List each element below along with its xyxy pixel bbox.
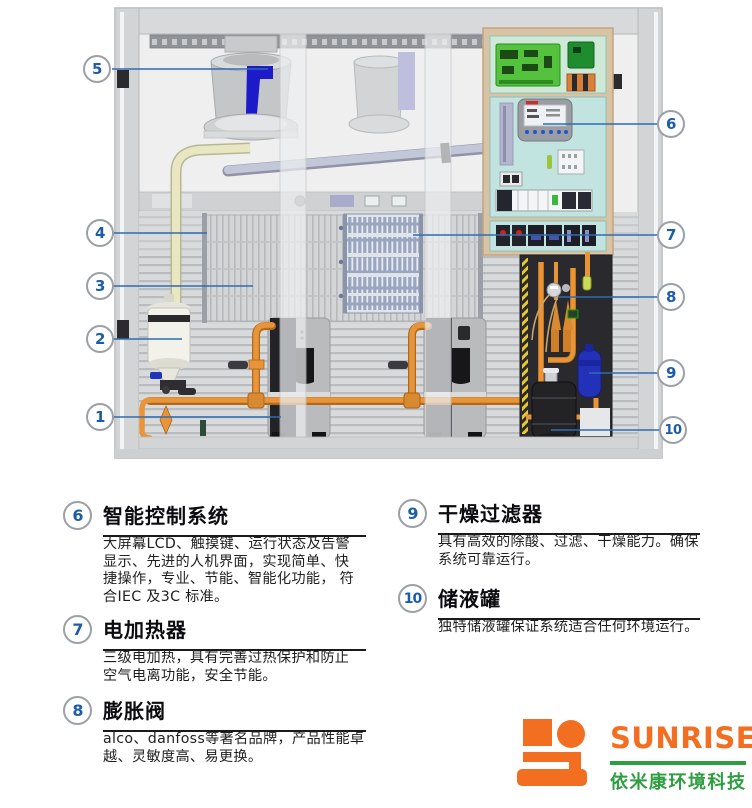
section-smart-control: 6 智能控制系统 大屏幕LCD、触摸键、运行状态及告警 显示、先进的人机界面，实… bbox=[63, 500, 368, 612]
callout-4: 4 bbox=[86, 219, 114, 247]
callout-7: 7 bbox=[657, 221, 685, 249]
fan-right bbox=[349, 52, 415, 133]
electric-heater bbox=[339, 214, 423, 313]
section-title: 干燥过滤器 bbox=[438, 498, 700, 535]
section-number-badge: 10 bbox=[398, 584, 427, 613]
callout-3: 3 bbox=[86, 272, 114, 300]
section-number-badge: 9 bbox=[398, 499, 427, 528]
refrigeration-compartment bbox=[520, 252, 612, 443]
callout-5: 5 bbox=[83, 55, 111, 83]
callout-1: 1 bbox=[86, 403, 114, 431]
section-title: 智能控制系统 bbox=[103, 500, 366, 537]
section-receiver: 10 储液罐 独特储液罐保证系统适合任何环境运行。 bbox=[398, 583, 703, 639]
section-body: 三级电加热，具有完善过热保护和防止 空气电离功能，安全节能。 bbox=[103, 650, 349, 685]
section-body: alco、danfoss等著名品牌，产品性能卓 越、灵敏度高、易更换。 bbox=[103, 731, 364, 766]
section-electric-heater: 7 电加热器 三级电加热，具有完善过热保护和防止 空气电离功能，安全节能。 bbox=[63, 614, 368, 684]
section-drier-filter: 9 干燥过滤器 具有高效的除酸、过滤、干燥能力。确保 系统可靠运行。 bbox=[398, 498, 703, 580]
section-number-badge: 7 bbox=[63, 615, 92, 644]
section-number-badge: 8 bbox=[63, 696, 92, 725]
callout-6: 6 bbox=[657, 110, 685, 138]
section-body: 独特储液罐保证系统适合任何环境运行。 bbox=[438, 619, 699, 637]
section-body: 大屏幕LCD、触摸键、运行状态及告警 显示、先进的人机界面，实现简单、快 捷操作… bbox=[103, 536, 354, 606]
logo-divider bbox=[610, 761, 746, 765]
company-logo: SUNRISE 依米康环境科技 bbox=[515, 716, 747, 798]
logo-brand-text: SUNRISE bbox=[610, 721, 752, 755]
section-title: 储液罐 bbox=[438, 583, 700, 620]
section-body: 具有高效的除酸、过滤、干燥能力。确保 系统可靠运行。 bbox=[438, 534, 699, 569]
catalog-page: 5 4 3 2 1 6 7 8 9 10 6 智能控制系统 大屏幕LCD、触摸键… bbox=[0, 0, 752, 808]
section-title: 膨胀阀 bbox=[103, 695, 366, 732]
callout-9: 9 bbox=[657, 359, 685, 387]
section-number-badge: 6 bbox=[63, 501, 92, 530]
logo-company-text: 依米康环境科技 bbox=[610, 768, 747, 794]
control-panel bbox=[483, 28, 613, 255]
sunrise-logo-icon bbox=[517, 719, 599, 787]
callout-8: 8 bbox=[657, 283, 685, 311]
callout-10: 10 bbox=[659, 416, 687, 444]
callout-2: 2 bbox=[86, 325, 114, 353]
section-title: 电加热器 bbox=[103, 614, 366, 651]
section-expansion-valve: 8 膨胀阀 alco、danfoss等著名品牌，产品性能卓 越、灵敏度高、易更换… bbox=[63, 695, 368, 765]
